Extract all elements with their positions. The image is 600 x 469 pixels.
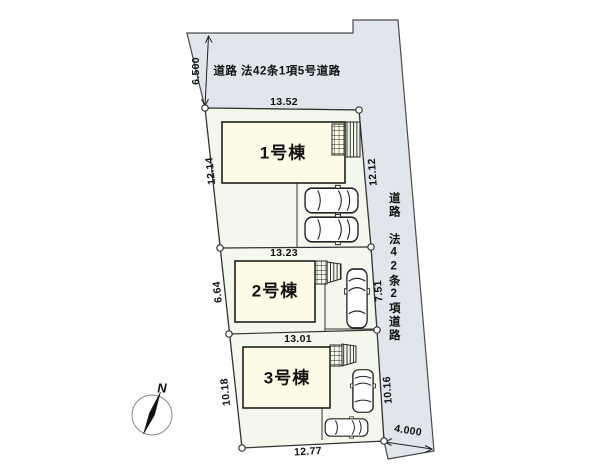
dim-plot1-top: 13.52	[270, 97, 298, 108]
building-3-label: 3号棟	[264, 370, 310, 387]
dim-plot3-left: 10.18	[219, 378, 232, 407]
building-1-stairs	[332, 122, 360, 157]
car-plot1-lower	[305, 214, 358, 244]
building-2-stairs	[315, 261, 341, 284]
dim-road-top-width: 6.500	[191, 57, 202, 85]
road-right-label: 道路 法42条2項道路	[387, 192, 399, 343]
dim-plot2-left: 6.64	[212, 281, 225, 304]
site-plan: 道路 法42条1項5号道路 道路 法42条2項道路 6.500 4.000 13…	[0, 0, 600, 469]
car-plot2	[345, 269, 370, 328]
car-plot3-upper	[351, 370, 376, 413]
compass-icon	[132, 392, 172, 435]
car-plot3-lower	[325, 417, 368, 438]
dim-plot3-top: 13.01	[284, 334, 312, 345]
dim-plot2-right: 7.51	[373, 280, 385, 302]
road-top-label: 道路 法42条1項5号道路	[213, 66, 340, 78]
building-3-stairs	[330, 344, 356, 366]
dim-plot3-right: 10.16	[382, 376, 394, 404]
car-plot1-upper	[305, 185, 358, 215]
building-2-label: 2号棟	[252, 283, 298, 300]
dim-plot1-left: 12.14	[204, 157, 217, 186]
compass-north-label: N	[157, 382, 166, 395]
dim-plot3-bottom: 12.77	[294, 446, 322, 458]
dim-plot2-top: 13.23	[270, 248, 298, 259]
building-1-label: 1号棟	[260, 145, 306, 162]
dim-plot1-right: 12.12	[367, 158, 379, 186]
